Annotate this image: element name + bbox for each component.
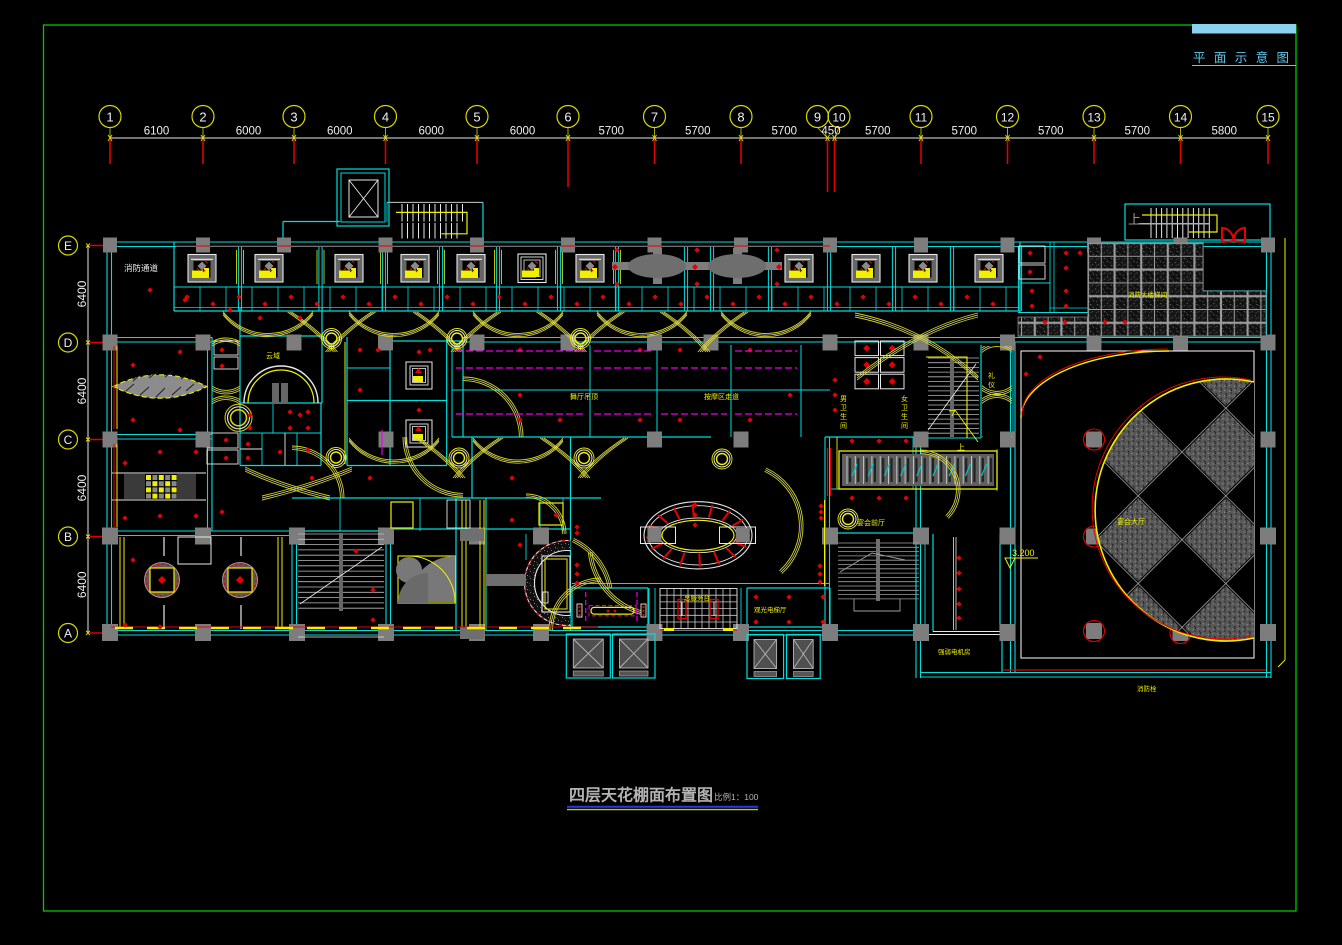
svg-text:5700: 5700 xyxy=(771,126,797,138)
svg-text:5700: 5700 xyxy=(951,126,977,138)
svg-text:B: B xyxy=(64,530,72,544)
svg-text:女: 女 xyxy=(901,394,908,403)
svg-text:生: 生 xyxy=(840,412,847,421)
svg-text:6000: 6000 xyxy=(510,126,536,138)
svg-text:比例1：100: 比例1：100 xyxy=(714,792,759,802)
svg-text:6400: 6400 xyxy=(75,377,89,404)
svg-text:D: D xyxy=(64,336,73,350)
svg-text:A: A xyxy=(64,627,72,641)
svg-text:消防大楼梯间: 消防大楼梯间 xyxy=(1128,290,1167,299)
svg-text:6: 6 xyxy=(564,110,571,125)
svg-text:5700: 5700 xyxy=(685,126,711,138)
svg-text:强弱电机房: 强弱电机房 xyxy=(938,647,971,656)
svg-text:5800: 5800 xyxy=(1211,126,1237,138)
svg-text:8: 8 xyxy=(737,110,744,125)
svg-text:卫: 卫 xyxy=(840,404,847,412)
svg-text:C: C xyxy=(64,433,73,447)
svg-text:12: 12 xyxy=(1001,111,1015,125)
svg-text:3.200: 3.200 xyxy=(1012,548,1035,558)
svg-text:5700: 5700 xyxy=(865,126,891,138)
svg-text:13: 13 xyxy=(1087,111,1101,125)
svg-text:6400: 6400 xyxy=(75,571,89,598)
svg-text:15: 15 xyxy=(1261,111,1275,125)
svg-text:6400: 6400 xyxy=(75,474,89,501)
svg-text:6400: 6400 xyxy=(75,280,89,307)
svg-text:间: 间 xyxy=(840,422,847,430)
svg-text:6000: 6000 xyxy=(418,126,444,138)
svg-text:7: 7 xyxy=(651,110,658,125)
svg-text:卫: 卫 xyxy=(901,404,908,412)
svg-text:总服务台: 总服务台 xyxy=(684,593,710,602)
svg-text:6100: 6100 xyxy=(144,126,170,138)
svg-text:舞厅吊顶: 舞厅吊顶 xyxy=(570,392,598,401)
svg-text:观光电梯厅: 观光电梯厅 xyxy=(754,605,787,614)
svg-text:450: 450 xyxy=(821,126,840,138)
svg-text:14: 14 xyxy=(1174,111,1188,125)
svg-text:2: 2 xyxy=(199,110,206,125)
svg-text:5700: 5700 xyxy=(1124,126,1150,138)
svg-text:5: 5 xyxy=(473,110,480,125)
svg-text:6000: 6000 xyxy=(236,126,262,138)
svg-text:4: 4 xyxy=(382,110,389,125)
svg-text:按摩区走道: 按摩区走道 xyxy=(704,392,739,401)
svg-text:1: 1 xyxy=(106,110,113,125)
svg-text:礼: 礼 xyxy=(988,371,995,380)
svg-text:云域: 云域 xyxy=(266,351,280,360)
svg-text:消防通道: 消防通道 xyxy=(124,263,159,273)
svg-text:10: 10 xyxy=(832,111,846,125)
svg-text:E: E xyxy=(64,239,72,253)
svg-text:男: 男 xyxy=(840,395,847,403)
svg-text:上: 上 xyxy=(957,443,965,452)
svg-text:6000: 6000 xyxy=(327,126,353,138)
svg-text:3: 3 xyxy=(290,110,297,125)
svg-text:5700: 5700 xyxy=(1038,126,1064,138)
svg-text:宴会前厅: 宴会前厅 xyxy=(857,518,885,527)
svg-text:四层天花棚面布置图: 四层天花棚面布置图 xyxy=(569,786,713,805)
svg-text:消防栓: 消防栓 xyxy=(1137,684,1157,693)
svg-text:5700: 5700 xyxy=(598,126,624,138)
svg-text:宴会大厅: 宴会大厅 xyxy=(1117,517,1145,526)
svg-text:间: 间 xyxy=(901,422,908,430)
svg-text:上: 上 xyxy=(1128,212,1141,227)
svg-text:9: 9 xyxy=(814,110,821,125)
svg-text:11: 11 xyxy=(915,111,928,125)
svg-text:仪: 仪 xyxy=(988,381,995,389)
svg-text:生: 生 xyxy=(901,412,908,421)
